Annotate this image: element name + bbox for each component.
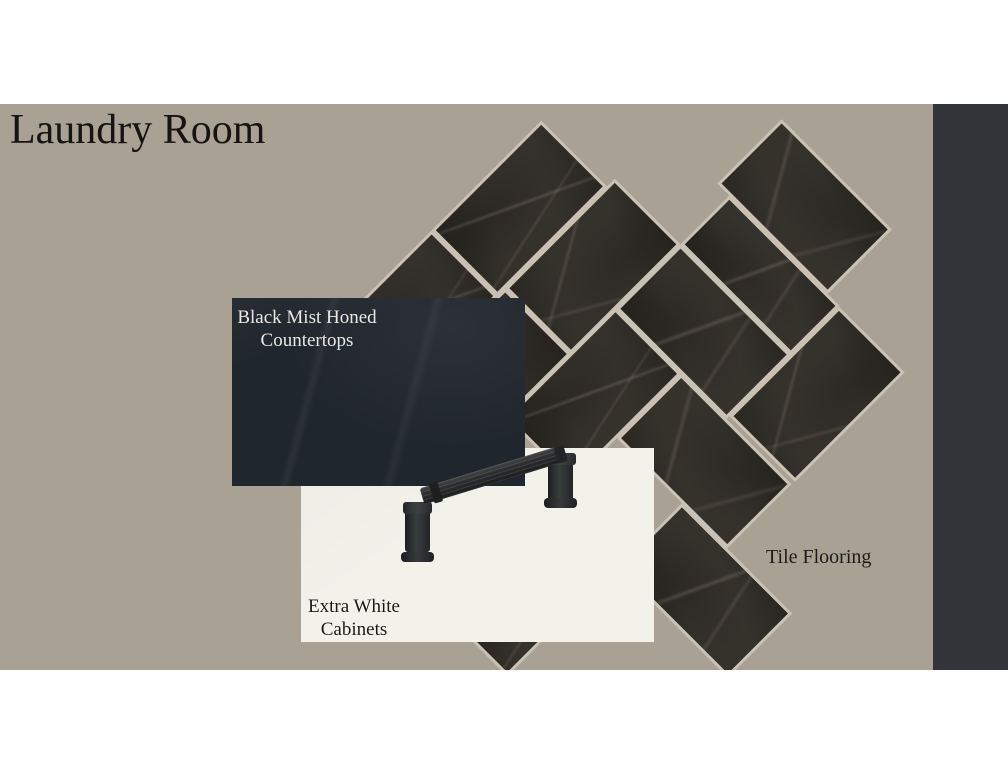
- pull-left-foot: [401, 552, 434, 562]
- cabinet-label: Extra White Cabinets: [301, 595, 407, 641]
- pull-collar: [428, 481, 443, 504]
- countertop-label: Black Mist Honed Countertops: [232, 306, 382, 352]
- countertop-label-line1: Black Mist Honed: [232, 306, 382, 329]
- countertop-label-line2: Countertops: [232, 329, 382, 352]
- mood-board-canvas: Extra White Cabinets Black Mist Honed Co…: [0, 104, 1008, 670]
- page-title: Laundry Room: [10, 106, 265, 154]
- cabinet-pull-hardware: [398, 449, 588, 574]
- cabinet-label-line2: Cabinets: [301, 618, 407, 641]
- pull-right-foot: [544, 498, 577, 508]
- cabinet-label-line1: Extra White: [301, 595, 407, 618]
- accent-bar: [933, 104, 1008, 670]
- flooring-label: Tile Flooring: [766, 546, 871, 569]
- pull-left-cap: [403, 502, 432, 514]
- pull-bar: [420, 445, 568, 505]
